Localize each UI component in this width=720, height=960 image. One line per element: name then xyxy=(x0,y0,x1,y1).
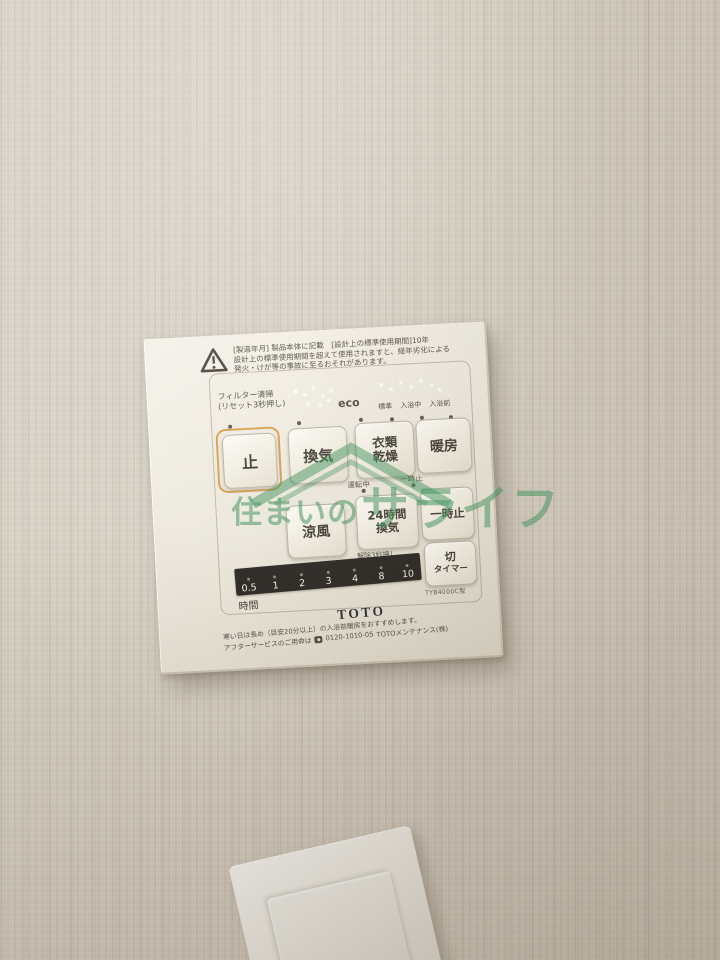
freedial-icon xyxy=(314,635,323,643)
hours-unit-label: 時間 xyxy=(238,596,259,613)
light-switch-rocker[interactable] xyxy=(267,871,419,960)
timer-cell: 1 xyxy=(261,564,290,593)
timer-off-label-2: タイマー xyxy=(434,563,469,578)
service-phone-number: 0120-1010-05 xyxy=(325,630,374,642)
mode-standard-label: 標準 xyxy=(378,401,393,412)
vent-24h-label-2: 換気 xyxy=(376,521,400,536)
heating-button[interactable]: 暖房 xyxy=(415,417,473,474)
ventilation-button-label: 換気 xyxy=(303,444,334,467)
clothes-dry-button[interactable]: 衣類 乾燥 xyxy=(354,420,416,479)
cool-breeze-button[interactable]: 涼風 xyxy=(285,503,347,559)
timer-led xyxy=(406,564,409,567)
stop-button-label: 止 xyxy=(241,448,258,473)
clothes-dry-label-2: 乾燥 xyxy=(373,449,399,465)
timer-cell: 3 xyxy=(314,560,343,589)
warning-triangle-icon xyxy=(199,347,228,373)
wallpaper-seam xyxy=(648,0,651,960)
eco-label: eco xyxy=(338,396,360,410)
cool-breeze-label: 涼風 xyxy=(302,520,331,541)
pause-button-label: 一時止 xyxy=(430,505,465,523)
pause-button[interactable]: 一時止 xyxy=(420,486,476,541)
timer-cell: 0.5 xyxy=(234,567,263,596)
mode-pre-bath-label: 入浴前 xyxy=(429,398,450,409)
timer-value: 0.5 xyxy=(241,583,257,593)
timer-led xyxy=(326,571,329,574)
mode-in-bath-label: 入浴中 xyxy=(400,400,421,411)
timer-cell: 8 xyxy=(367,555,396,584)
stop-button[interactable]: 止 xyxy=(222,432,279,489)
filter-clean-label: フィルター清掃 (リセット3秒押し) xyxy=(217,389,285,412)
running-label: 運転中 xyxy=(347,479,370,491)
ventilation-button[interactable]: 換気 xyxy=(287,426,349,485)
timer-cell: 10 xyxy=(393,553,422,582)
vent-24h-button[interactable]: 24時間 換気 xyxy=(355,493,420,550)
timer-led xyxy=(300,573,303,576)
timer-cell: 4 xyxy=(340,557,369,586)
light-switch-plate xyxy=(228,825,445,960)
timer-led xyxy=(247,578,250,581)
timer-value: 1 xyxy=(272,581,279,590)
timer-value: 8 xyxy=(378,572,385,581)
timer-led xyxy=(379,566,382,569)
timer-value: 4 xyxy=(352,574,359,583)
bath-dryer-control-panel: [製造年月] 製品本体に記載 [設計上の標準使用期間]10年 設計上の標準使用期… xyxy=(143,321,503,674)
timer-value: 10 xyxy=(402,569,415,579)
heating-button-label: 暖房 xyxy=(429,435,458,456)
timer-led xyxy=(273,575,276,578)
timer-led xyxy=(353,568,356,571)
timer-off-label-1: 切 xyxy=(444,550,456,564)
timer-off-button[interactable]: 切 タイマー xyxy=(423,540,477,587)
timer-value: 3 xyxy=(325,577,332,586)
photo-scene: [製造年月] 製品本体に記載 [設計上の標準使用期間]10年 設計上の標準使用期… xyxy=(0,0,720,960)
timer-value: 2 xyxy=(299,579,306,588)
timer-cell: 2 xyxy=(287,562,316,591)
